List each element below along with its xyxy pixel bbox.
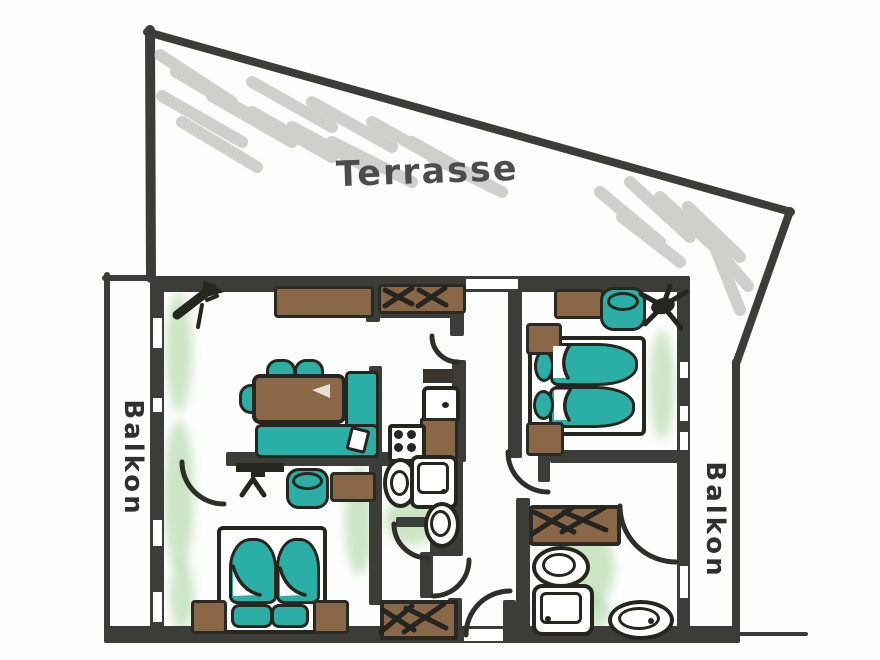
mattress-folds [233, 346, 570, 596]
tv-chevron [242, 479, 264, 495]
terrace-label: Terrasse [335, 149, 519, 195]
floor-plan: Terrasse Balkon Balkon [0, 0, 880, 660]
balcony-right-label: Balkon [694, 440, 730, 600]
balcony-left-label: Balkon [112, 378, 148, 538]
table-glint [312, 384, 330, 398]
x-marks [381, 288, 606, 632]
coat-rack [177, 280, 224, 327]
symbols-overlay [0, 0, 880, 660]
plant [641, 286, 686, 328]
